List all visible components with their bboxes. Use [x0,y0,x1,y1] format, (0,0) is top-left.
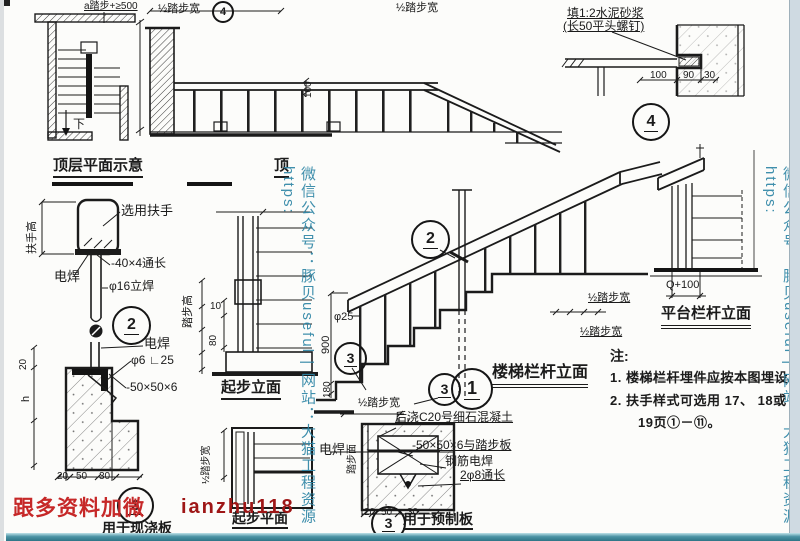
tread-dim-r2: ½踏步宽 [580,326,622,338]
promo-handle: ianzhu118 [181,496,295,519]
detail-ref-4-small: 4 [212,1,234,23]
weld-label-2: 电焊 [144,337,170,351]
platform-railing-elevation-drawing [650,144,762,299]
linework [0,0,800,541]
platform-dim: Q+100 [666,279,699,291]
start-elev-title: 起步立面 [221,380,281,400]
notes-line3: 19页①－⑪。 [638,416,721,430]
precast-weld-label: 电焊 [319,443,345,457]
notes-line2: 2. 扶手样式可选用 17、 18或 [610,394,787,408]
tread-width-label-top2: ½踏步宽 [396,2,438,14]
detail4-note2: (长50平头螺钉) [563,20,644,33]
detail-3-cast-drawing [31,342,143,481]
main-elev-title: 楼梯栏杆立面 [492,364,588,388]
dim-180: 180 [322,381,333,398]
startelev-dim-10: 10 [210,301,221,312]
drawing-sheet: a踏步+≥500 ½踏步宽 4 ½踏步宽 顶层平面示意 顶 下 100 填1:2… [0,0,800,541]
top-floor-plan-drawing [35,12,144,140]
cast-dim-left-20: 20 [18,359,29,370]
post-label: φ16立焊 [109,280,154,293]
precast-concrete-label: 后浇C20号细石混凝土 [395,411,513,424]
dim-900: 900 [320,336,332,354]
detail4-dim-100: 100 [650,70,667,81]
weld-label-1: 电焊 [54,270,80,284]
platform-title: 平台栏杆立面 [661,306,751,329]
detail4-dim-90: 90 [683,70,694,81]
riser-height-dim: 踏步高 [182,295,194,328]
tread-dim-r1: ½踏步宽 [588,292,630,304]
detail-ref-4: 4 [632,103,670,141]
angle-label: -50×50×6 [126,381,177,394]
left-edge-band [0,0,4,541]
startelev-dim-80: 80 [208,335,219,346]
right-edge-band [789,0,800,541]
tread-dim-bottom: ½踏步宽 [358,397,400,409]
cast-dim-30: 30 [99,471,110,482]
detail-2-drawing [39,199,121,338]
anchor-label: φ6 ∟25 [131,354,174,367]
ref-2-callout: 2 [411,220,450,259]
precast-rebar-weld-label: 钢筋电焊 [445,455,493,468]
tread-width-label-top: ½踏步宽 [158,3,200,15]
top-plan-title: 顶层平面示意 [53,158,143,178]
notes-heading: 注: [610,349,629,364]
drawing-number-1: 1 [451,368,493,410]
detail-4-drawing [562,25,744,96]
detail4-dim-30: 30 [704,70,715,81]
startplan-tread-dim: ½踏步宽 [201,446,212,484]
cast-dim-20: 20 [57,471,68,482]
precast-angle-label: -50×50×6与踏步板 [412,439,511,452]
dia-label: φ25 [334,311,353,323]
cast-dim-50: 50 [76,471,87,482]
precast-face-label: 踏步面 [347,444,358,474]
plan-note: a踏步+≥500 [84,1,138,12]
precast-title: 用于预制板 [403,512,473,530]
ref-3a-callout: 3 [334,342,367,375]
top-rail-elevation-drawing [145,8,562,152]
precast-rebar-label: 2φ8通长 [460,469,505,482]
handrail-height-dim: 扶手高 [26,221,38,254]
down-label: 下 [73,118,85,131]
handrail-label: 选用扶手 [121,204,173,218]
dim-100-top: 100 [303,81,314,98]
bottom-teal-bar [6,533,800,541]
watermark-left: 微信公众号：豚贝useful | 网站：大猫工程资源 https: [280,166,318,538]
flat-bar-label: -40×4通长 [111,257,166,270]
cast-dim-left-h: h [20,396,32,402]
promo-text: 跟多资料加微 [13,492,145,522]
